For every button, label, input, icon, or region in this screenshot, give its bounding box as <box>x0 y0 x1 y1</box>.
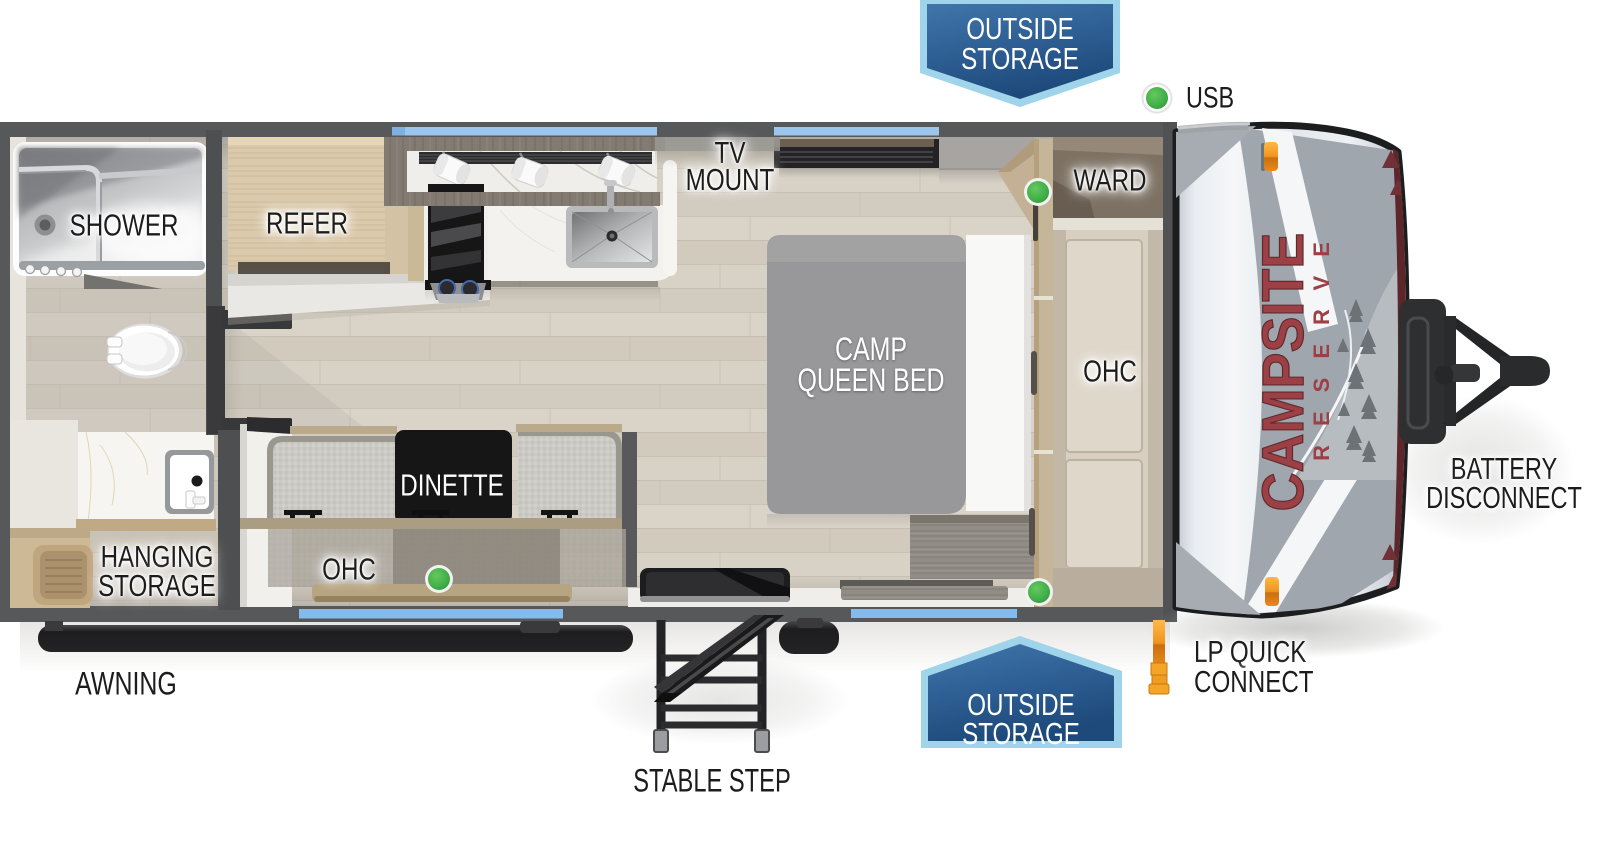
svg-text:CAMPSITE: CAMPSITE <box>1250 233 1315 512</box>
svg-text:RESERVE: RESERVE <box>1309 223 1334 461</box>
